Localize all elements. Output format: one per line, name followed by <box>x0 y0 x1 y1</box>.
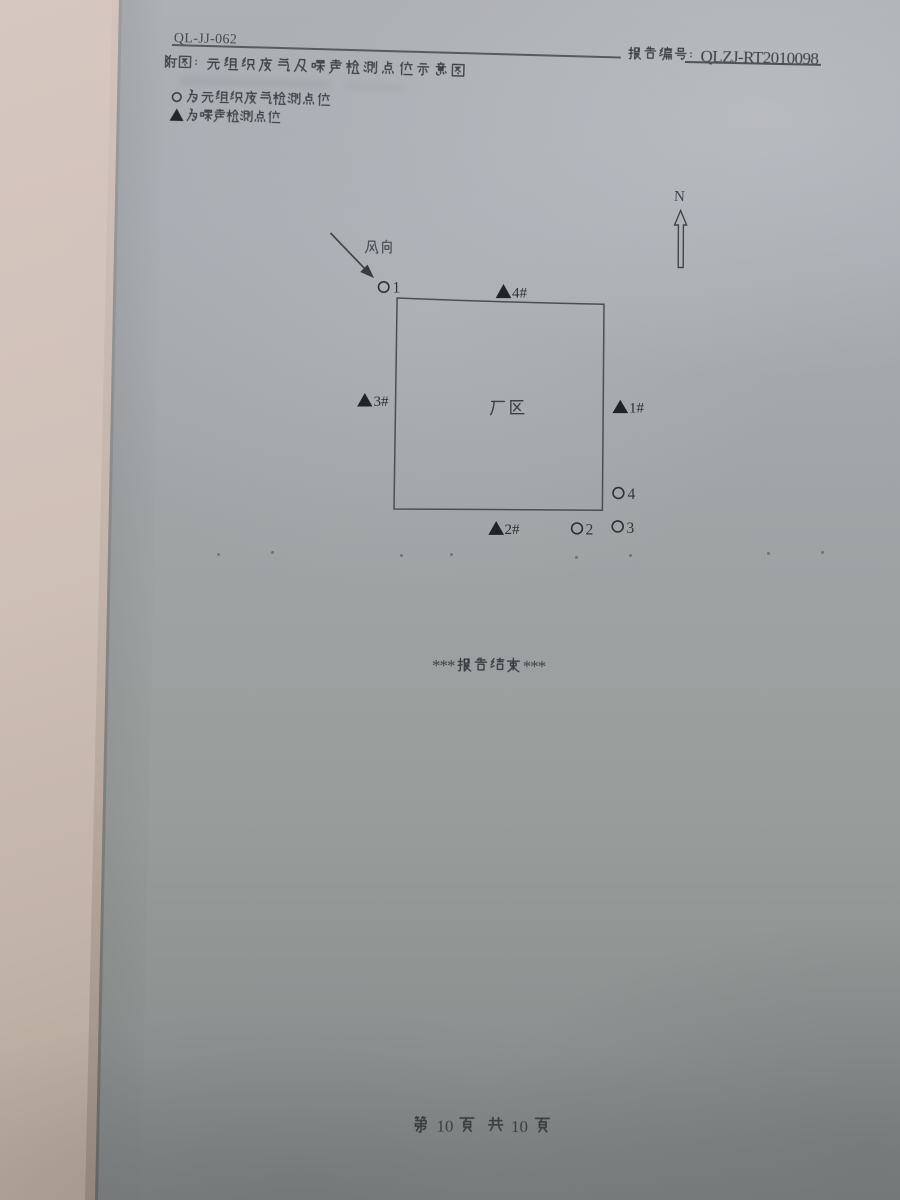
svg-text:***: *** <box>432 656 455 675</box>
svg-text:***: *** <box>523 657 546 676</box>
svg-text:4: 4 <box>628 486 636 503</box>
svg-text:4#: 4# <box>512 286 528 302</box>
svg-text:10: 10 <box>436 1117 453 1136</box>
svg-text:1: 1 <box>393 280 401 297</box>
svg-text:10: 10 <box>511 1117 528 1136</box>
svg-text:1#: 1# <box>629 401 645 417</box>
svg-text:2: 2 <box>586 522 594 539</box>
svg-text:3: 3 <box>627 520 635 537</box>
svg-text:N: N <box>674 189 686 205</box>
svg-text:QLZJ-RT2010098: QLZJ-RT2010098 <box>700 47 818 69</box>
svg-text:2#: 2# <box>505 522 521 538</box>
svg-text:3#: 3# <box>374 394 390 410</box>
